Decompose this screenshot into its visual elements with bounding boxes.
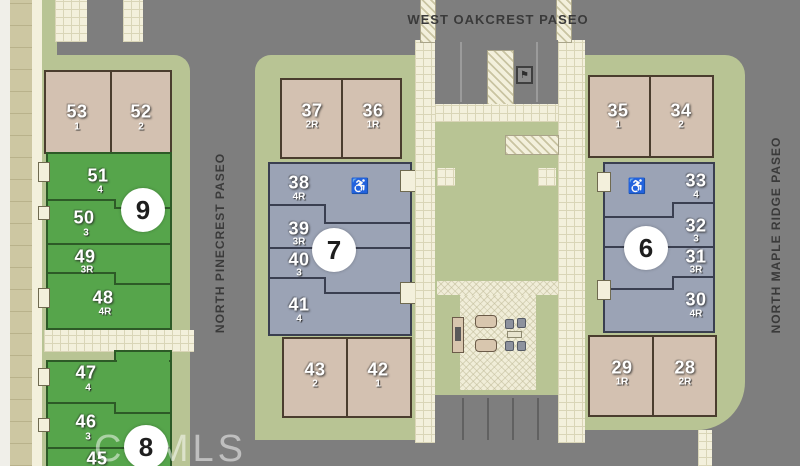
unit-divider bbox=[324, 292, 412, 294]
unit-divider bbox=[46, 402, 116, 404]
parkway-strip bbox=[10, 0, 32, 466]
plan-label-35: 1 bbox=[615, 120, 621, 131]
accessibility-icon: ♿ bbox=[628, 177, 647, 195]
unit-divider bbox=[114, 283, 172, 285]
court-sidewalk-left bbox=[415, 40, 435, 443]
picnic-table bbox=[475, 339, 497, 352]
plan-label-34: 2 bbox=[678, 120, 684, 131]
plan-label-28: 2R bbox=[679, 377, 692, 388]
plan-label-36: 1R bbox=[367, 120, 380, 131]
crosswalk-oakcrest-west bbox=[123, 0, 143, 42]
plan-label-43: 2 bbox=[312, 379, 318, 390]
plan-label-31: 3R bbox=[690, 265, 703, 276]
plan-label-32: 3 bbox=[693, 234, 699, 245]
plan-label-38: 4R bbox=[293, 192, 306, 203]
picnic-table bbox=[475, 315, 497, 328]
parking-stall-line bbox=[537, 398, 539, 440]
patio-pad bbox=[505, 135, 559, 155]
porch-pad bbox=[400, 170, 416, 192]
unit-label-35: 35 bbox=[607, 101, 628, 122]
building-seam bbox=[117, 358, 169, 364]
crosswalk-driveway bbox=[487, 50, 514, 106]
plan-label-48: 4R bbox=[99, 307, 112, 318]
court-sidewalk-right bbox=[558, 40, 585, 443]
plan-label-40: 3 bbox=[296, 268, 302, 279]
plan-label-30: 4R bbox=[690, 309, 703, 320]
plan-label-46: 3 bbox=[85, 432, 91, 443]
unit-label-50: 50 bbox=[73, 208, 94, 229]
walkway-band bbox=[44, 330, 194, 352]
unit-label-42: 42 bbox=[367, 360, 388, 381]
plan-label-50: 3 bbox=[83, 228, 89, 239]
unit-divider bbox=[110, 70, 112, 154]
unit-label-51: 51 bbox=[87, 166, 108, 187]
building-marker-7: 7 bbox=[312, 228, 356, 272]
unit-divider bbox=[603, 216, 674, 218]
plan-label-39: 3R bbox=[293, 237, 306, 248]
sidewalk-top-left bbox=[55, 0, 87, 42]
chair bbox=[505, 319, 514, 329]
building-53-52 bbox=[44, 70, 172, 154]
porch-pad bbox=[400, 282, 416, 304]
unit-label-41: 41 bbox=[288, 295, 309, 316]
unit-label-53: 53 bbox=[66, 102, 87, 123]
plan-label-49: 3R bbox=[81, 265, 94, 276]
plan-label-29: 1R bbox=[616, 377, 629, 388]
unit-label-48: 48 bbox=[92, 288, 113, 309]
unit-divider bbox=[324, 204, 326, 224]
building-marker-6: 6 bbox=[624, 226, 668, 270]
porch-pad bbox=[38, 418, 50, 432]
chair bbox=[505, 341, 514, 351]
lane-line bbox=[536, 42, 538, 102]
porch-pad bbox=[38, 288, 50, 308]
plan-label-53: 1 bbox=[74, 122, 80, 133]
paver-square bbox=[437, 168, 455, 186]
porch-pad bbox=[38, 206, 50, 220]
chair bbox=[517, 318, 526, 328]
plan-label-37: 2R bbox=[306, 120, 319, 131]
unit-divider bbox=[114, 412, 172, 414]
unit-divider bbox=[652, 335, 654, 417]
sidewalk-strip bbox=[32, 0, 42, 466]
building-marker-8: 8 bbox=[124, 425, 168, 466]
unit-divider bbox=[46, 243, 172, 245]
porch-pad bbox=[38, 162, 50, 182]
porch-pad bbox=[38, 368, 50, 386]
unit-label-52: 52 bbox=[130, 102, 151, 123]
unit-label-28: 28 bbox=[674, 358, 695, 379]
side-table bbox=[507, 331, 522, 338]
accessibility-icon: ♿ bbox=[351, 177, 370, 195]
unit-divider bbox=[324, 222, 412, 224]
unit-divider bbox=[341, 78, 343, 159]
unit-divider bbox=[346, 337, 348, 418]
map-edge-strip bbox=[0, 0, 10, 466]
bbq-grill bbox=[455, 327, 461, 341]
parking-stall-line bbox=[462, 398, 464, 440]
plan-label-47: 4 bbox=[85, 383, 91, 394]
unit-label-36: 36 bbox=[362, 101, 383, 122]
unit-divider bbox=[46, 199, 116, 201]
unit-label-29: 29 bbox=[611, 358, 632, 379]
crmls-watermark: CRMLS bbox=[94, 428, 247, 466]
lane-line bbox=[460, 42, 462, 102]
street-label-north-pinecrest-paseo: NORTH PINECREST PASEO bbox=[213, 138, 227, 348]
sidewalk-bottom-right bbox=[698, 430, 712, 466]
unit-divider bbox=[603, 288, 674, 290]
chair bbox=[517, 341, 526, 351]
unit-label-34: 34 bbox=[670, 101, 691, 122]
unit-label-37: 37 bbox=[301, 101, 322, 122]
unit-label-43: 43 bbox=[304, 360, 325, 381]
unit-divider bbox=[672, 202, 715, 204]
building-marker-9: 9 bbox=[121, 188, 165, 232]
plan-label-51: 4 bbox=[97, 185, 103, 196]
porch-pad bbox=[597, 172, 611, 192]
parking-sign-icon: ⚑ bbox=[516, 66, 533, 84]
community-site-plan: ⚑ ♿ ♿ 531 522 514 503 493R 484R 474 463 … bbox=[0, 0, 800, 466]
unit-divider bbox=[649, 75, 651, 158]
street-label-north-maple-ridge-paseo: NORTH MAPLE RIDGE PASEO bbox=[769, 125, 783, 345]
plan-label-52: 2 bbox=[138, 122, 144, 133]
parking-stall-line bbox=[512, 398, 514, 440]
plaza-path bbox=[437, 281, 558, 295]
paver-square bbox=[538, 168, 556, 186]
unit-label-38: 38 bbox=[288, 173, 309, 194]
street-label-west-oakcrest-paseo: WEST OAKCREST PASEO bbox=[378, 12, 618, 27]
parking-stall-line bbox=[487, 398, 489, 440]
unit-label-30: 30 bbox=[685, 290, 706, 311]
unit-label-47: 47 bbox=[75, 363, 96, 384]
porch-pad bbox=[597, 280, 611, 300]
plan-label-33: 4 bbox=[693, 190, 699, 201]
plan-label-42: 1 bbox=[375, 379, 381, 390]
parking-sign-glyph: ⚑ bbox=[520, 70, 529, 81]
center-parking bbox=[435, 395, 558, 443]
plan-label-41: 4 bbox=[296, 314, 302, 325]
unit-divider bbox=[268, 204, 326, 206]
unit-divider bbox=[672, 276, 715, 278]
unit-label-33: 33 bbox=[685, 171, 706, 192]
court-walk-band bbox=[435, 104, 558, 122]
